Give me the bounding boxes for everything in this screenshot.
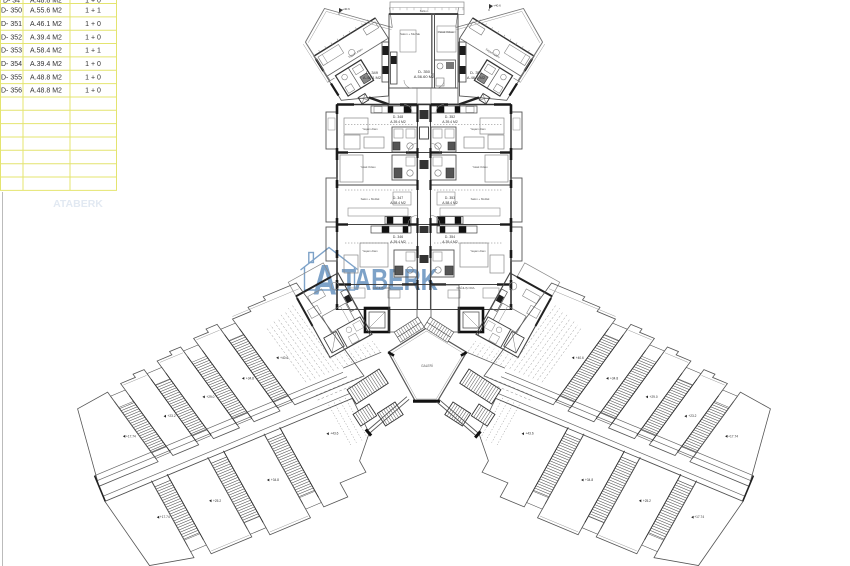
svg-text:A.56.60 M2: A.56.60 M2 <box>414 74 435 79</box>
svg-text:D- 351: D- 351 <box>1 21 22 28</box>
svg-text:D- 356: D- 356 <box>1 88 22 95</box>
svg-text:D- 34: D- 34 <box>3 0 20 5</box>
svg-text:1 + 0: 1 + 0 <box>85 21 101 28</box>
svg-text:+25.2: +25.2 <box>643 499 651 503</box>
svg-text:A.58.4 M2: A.58.4 M2 <box>390 201 406 205</box>
svg-text:+29.0: +29.0 <box>206 395 214 399</box>
svg-text:DAĞILIŞ ODA.: DAĞILIŞ ODA. <box>373 285 392 290</box>
svg-text:+43.6: +43.6 <box>330 432 338 436</box>
svg-text:Yatak Odası: Yatak Odası <box>472 165 487 169</box>
svg-text:Salon + Mutfak: Salon + Mutfak <box>361 197 380 201</box>
svg-text:D- 353: D- 353 <box>445 196 455 200</box>
svg-text:1 + 0: 1 + 0 <box>85 74 101 81</box>
svg-text:A.46.1 M2: A.46.1 M2 <box>30 21 62 28</box>
svg-text:D- 354: D- 354 <box>1 61 22 68</box>
svg-text:D- 353: D- 353 <box>1 48 22 55</box>
svg-text:TABERK: TABERK <box>342 262 438 297</box>
svg-text:+29.0: +29.0 <box>650 395 658 399</box>
svg-text:+17.74: +17.74 <box>728 434 738 438</box>
svg-text:+34.8: +34.8 <box>246 376 254 380</box>
svg-text:Yaşam Alanı: Yaşam Alanı <box>470 249 486 253</box>
svg-text:Yaşam Alanı: Yaşam Alanı <box>470 127 486 131</box>
svg-text:D- 347: D- 347 <box>393 196 403 200</box>
svg-text:A.48.8 M2: A.48.8 M2 <box>30 74 62 81</box>
svg-text:A.39.4 M2: A.39.4 M2 <box>442 120 458 124</box>
svg-text:D- 350: D- 350 <box>1 8 22 15</box>
svg-text:Yatak Odası: Yatak Odası <box>360 165 375 169</box>
svg-text:Salon + Mutfak: Salon + Mutfak <box>400 32 421 36</box>
svg-text:A.39.4 M2: A.39.4 M2 <box>30 61 62 68</box>
svg-text:+17.74: +17.74 <box>126 434 136 438</box>
svg-text:D- 352: D- 352 <box>1 34 22 41</box>
svg-text:D- 346: D- 346 <box>393 235 403 239</box>
svg-text:D- 354: D- 354 <box>445 235 455 239</box>
svg-text:D- 348: D- 348 <box>393 115 403 119</box>
svg-text:+40.6: +40.6 <box>493 4 501 8</box>
svg-text:1 + 0: 1 + 0 <box>85 34 101 41</box>
svg-text:1 + 0: 1 + 0 <box>85 88 101 95</box>
svg-text:+40.6: +40.6 <box>576 356 584 360</box>
svg-text:A.39.4 M2: A.39.4 M2 <box>390 240 406 244</box>
svg-text:+43.6: +43.6 <box>526 432 534 436</box>
svg-text:Yatak Odası: Yatak Odası <box>438 30 454 34</box>
svg-text:A.48.8 M2: A.48.8 M2 <box>30 0 62 5</box>
svg-text:A.55.6 M2: A.55.6 M2 <box>30 8 62 15</box>
svg-text:+23.2: +23.2 <box>168 414 176 418</box>
svg-text:ATABERK: ATABERK <box>53 198 103 210</box>
svg-text:1 + 1: 1 + 1 <box>85 48 101 55</box>
svg-text:+23.2: +23.2 <box>688 414 696 418</box>
svg-text:DAĞILIŞ ODA.: DAĞILIŞ ODA. <box>457 285 476 290</box>
svg-text:1 + 0: 1 + 0 <box>85 61 101 68</box>
svg-text:Yaşam Alanı: Yaşam Alanı <box>362 127 378 131</box>
svg-text:A.46.1 M2: A.46.1 M2 <box>363 75 382 80</box>
svg-text:+17.74: +17.74 <box>160 515 170 519</box>
svg-text:Salon + Mutfak: Salon + Mutfak <box>471 197 490 201</box>
svg-text:A.39.4 M2: A.39.4 M2 <box>30 34 62 41</box>
svg-text:A.48.8 M2: A.48.8 M2 <box>30 88 62 95</box>
svg-text:A.39.4 M2: A.39.4 M2 <box>390 120 406 124</box>
svg-text:A.58.4 M2: A.58.4 M2 <box>442 201 458 205</box>
svg-text:GALERİ: GALERİ <box>421 363 433 368</box>
svg-text:+34.8: +34.8 <box>585 478 593 482</box>
svg-text:Balkon: Balkon <box>420 9 429 13</box>
svg-text:+40.6: +40.6 <box>280 356 288 360</box>
svg-text:+25.2: +25.2 <box>213 499 221 503</box>
svg-text:D- 355: D- 355 <box>1 74 22 81</box>
svg-text:+40.6: +40.6 <box>342 7 350 11</box>
svg-text:1 + 1: 1 + 1 <box>85 8 101 15</box>
svg-text:+34.8: +34.8 <box>610 376 618 380</box>
svg-text:1 + 0: 1 + 0 <box>85 0 101 5</box>
svg-text:Yaşam Alanı: Yaşam Alanı <box>362 249 378 253</box>
svg-text:+17.74: +17.74 <box>694 515 704 519</box>
svg-text:D- 352: D- 352 <box>445 115 455 119</box>
svg-text:A.58.4 M2: A.58.4 M2 <box>30 48 62 55</box>
svg-text:A.46.1 M2: A.46.1 M2 <box>467 75 486 80</box>
svg-text:+34.8: +34.8 <box>271 478 279 482</box>
svg-text:A.39.4 M2: A.39.4 M2 <box>442 240 458 244</box>
